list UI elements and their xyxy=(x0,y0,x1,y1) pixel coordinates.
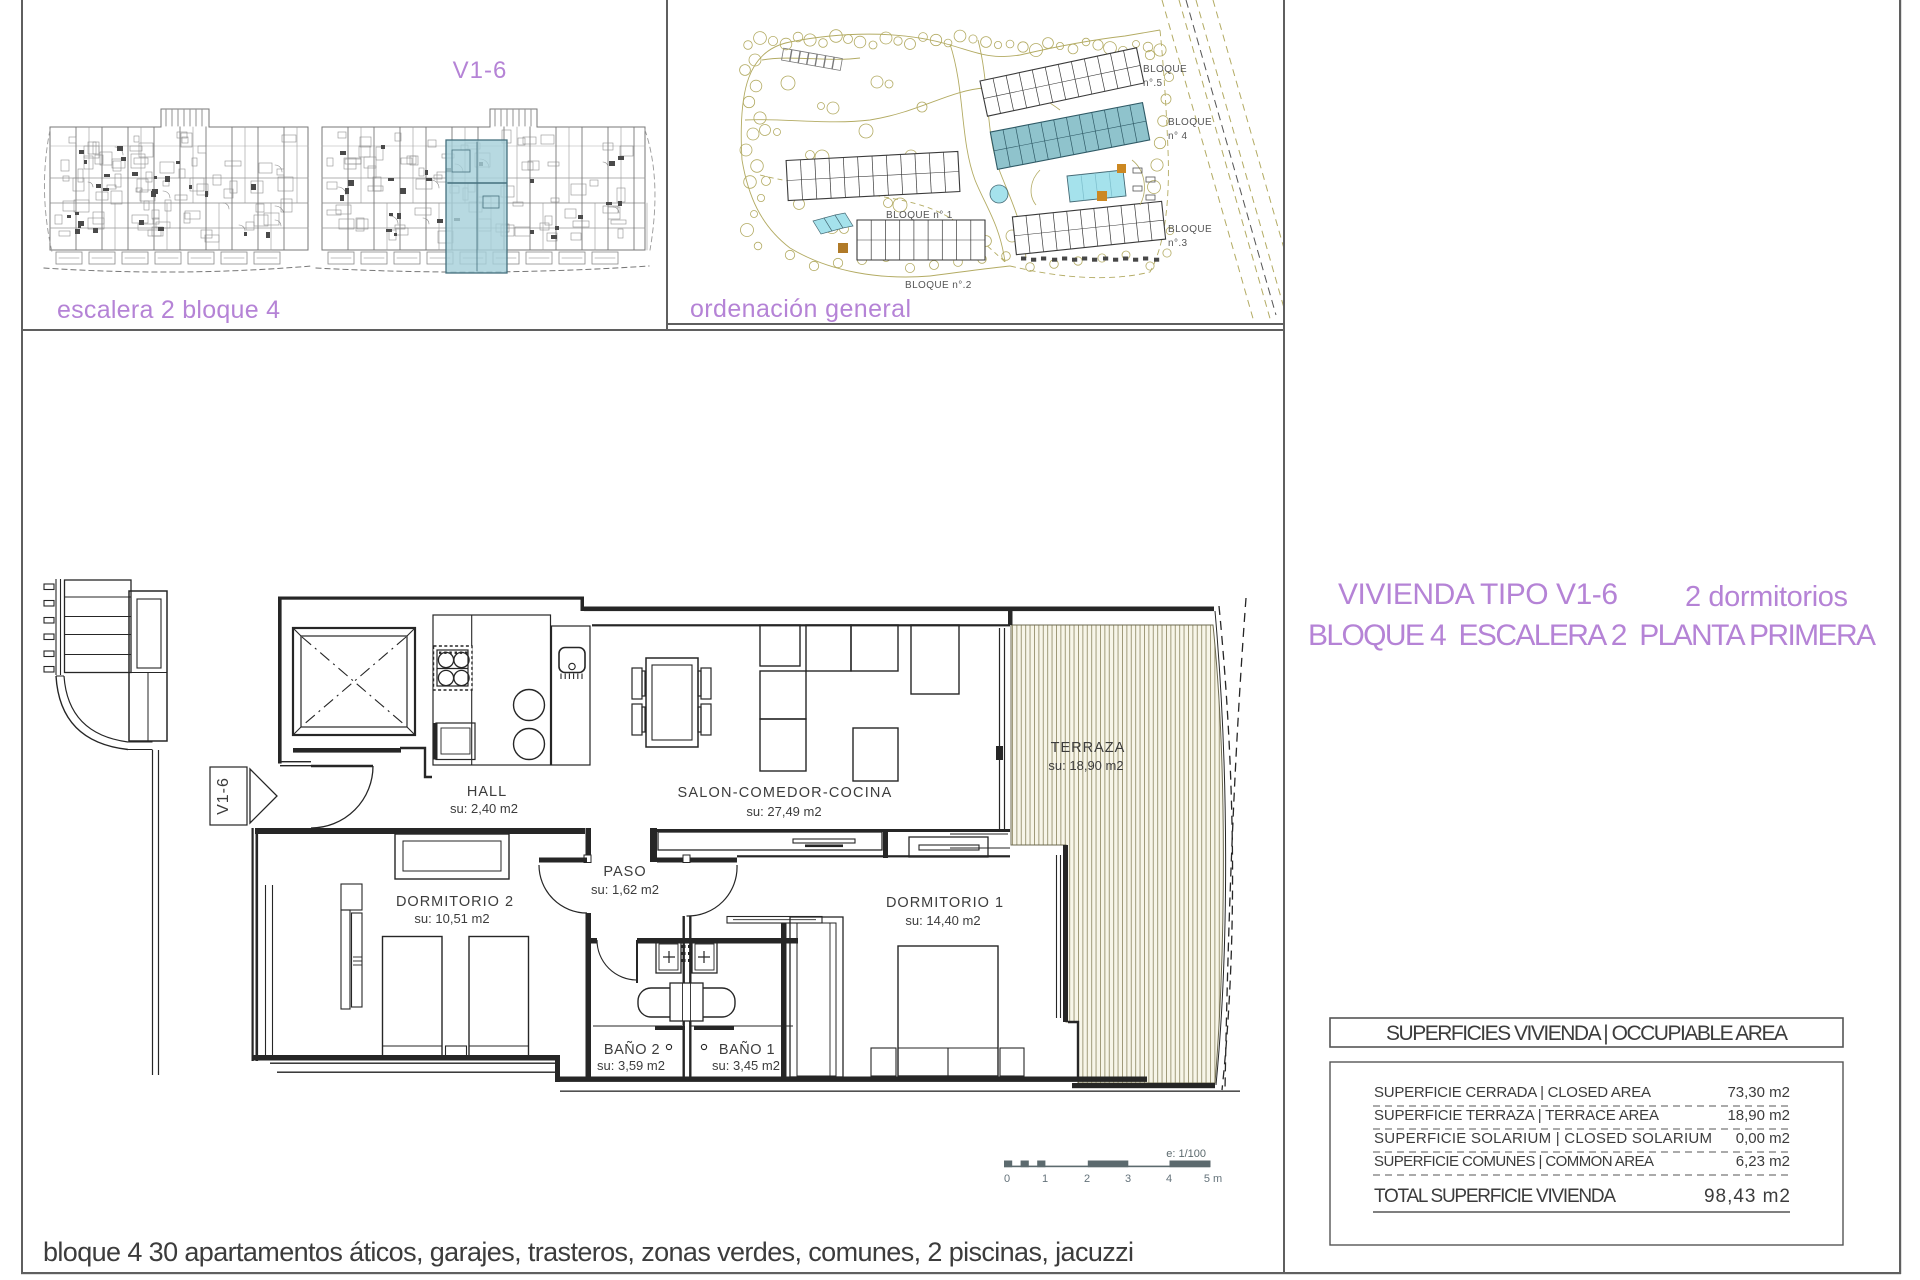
svg-text:SUPERFICIE SOLARIUM | CLOSED: SUPERFICIE SOLARIUM | CLOSED SOLARIUM xyxy=(1374,1130,1712,1147)
svg-text:n°.3: n°.3 xyxy=(1168,238,1188,249)
svg-text:SUPERFICIE CERRADA | CLOSED: SUPERFICIE CERRADA | CLOSED AREA xyxy=(1374,1084,1651,1101)
svg-text:DORMITORIO 2: DORMITORIO 2 xyxy=(396,894,514,910)
svg-text:TOTAL SUPERFICIE VIVIENDA: TOTAL SUPERFICIE VIVIENDA xyxy=(1374,1186,1616,1207)
svg-text:BLOQUE 4 ESCALERA 2 PLANTA P: BLOQUE 4 ESCALERA 2 PLANTA PRIMERA xyxy=(1308,619,1876,652)
svg-text:n°.5: n°.5 xyxy=(1143,78,1163,89)
svg-text:0,00 m2: 0,00 m2 xyxy=(1736,1130,1790,1147)
svg-text:BLOQUE: BLOQUE xyxy=(1168,117,1212,128)
svg-text:6,23 m2: 6,23 m2 xyxy=(1736,1153,1790,1170)
svg-text:su: 3,59 m2: su: 3,59 m2 xyxy=(597,1058,665,1073)
svg-text:98,43 m2: 98,43 m2 xyxy=(1704,1186,1790,1207)
svg-text:SUPERFICIES VIVIENDA | OCCUPIA: SUPERFICIES VIVIENDA | OCCUPIABLE AREA xyxy=(1386,1022,1788,1045)
svg-text:su: 27,49 m2: su: 27,49 m2 xyxy=(746,804,821,819)
svg-text:su: 1,62 m2: su: 1,62 m2 xyxy=(591,882,659,897)
svg-text:BLOQUE: BLOQUE xyxy=(1143,64,1187,75)
svg-text:3: 3 xyxy=(1125,1173,1131,1185)
svg-text:SUPERFICIE COMUNES | COMMON: SUPERFICIE COMUNES | COMMON AREA xyxy=(1374,1153,1654,1170)
svg-text:BLOQUE: BLOQUE xyxy=(1168,224,1212,235)
svg-text:e: 1/100: e: 1/100 xyxy=(1166,1148,1206,1160)
svg-text:2 dormitorios: 2 dormitorios xyxy=(1685,581,1848,613)
svg-text:su: 10,51 m2: su: 10,51 m2 xyxy=(414,911,489,926)
svg-text:18,90 m2: 18,90 m2 xyxy=(1727,1107,1790,1124)
svg-text:bloque 4 30 apartamentos ático: bloque 4 30 apartamentos áticos, garajes… xyxy=(43,1237,1134,1267)
svg-text:HALL: HALL xyxy=(467,784,507,800)
svg-text:0: 0 xyxy=(1004,1173,1010,1185)
svg-text:1: 1 xyxy=(1042,1173,1048,1185)
svg-text:su: 18,90 m2: su: 18,90 m2 xyxy=(1048,758,1123,773)
svg-text:su: 3,45 m2: su: 3,45 m2 xyxy=(712,1058,780,1073)
svg-text:su: 2,40 m2: su: 2,40 m2 xyxy=(450,801,518,816)
svg-text:BAÑO 2: BAÑO 2 xyxy=(604,1041,660,1058)
svg-text:DORMITORIO 1: DORMITORIO 1 xyxy=(886,895,1004,911)
svg-text:escalera 2 bloque 4: escalera 2 bloque 4 xyxy=(57,296,280,324)
svg-text:73,30 m2: 73,30 m2 xyxy=(1727,1084,1790,1101)
svg-text:5 m: 5 m xyxy=(1204,1173,1222,1185)
svg-text:SUPERFICIE TERRAZA | TERRAC: SUPERFICIE TERRAZA | TERRACE AREA xyxy=(1374,1107,1659,1124)
svg-text:VIVIENDA TIPO V1-6: VIVIENDA TIPO V1-6 xyxy=(1338,578,1618,611)
svg-text:BLOQUE n° 1: BLOQUE n° 1 xyxy=(886,210,953,221)
svg-text:BLOQUE n°.2: BLOQUE n°.2 xyxy=(905,280,972,291)
svg-text:n° 4: n° 4 xyxy=(1168,131,1188,142)
svg-text:su: 14,40 m2: su: 14,40 m2 xyxy=(905,913,980,928)
svg-text:V1-6: V1-6 xyxy=(453,57,508,84)
svg-text:4: 4 xyxy=(1166,1173,1172,1185)
svg-text:2: 2 xyxy=(1084,1173,1090,1185)
svg-text:BAÑO 1: BAÑO 1 xyxy=(719,1041,775,1058)
svg-text:SALON-COMEDOR-COCINA: SALON-COMEDOR-COCINA xyxy=(678,785,893,801)
svg-text:ordenación general: ordenación general xyxy=(690,295,911,323)
svg-text:V1-6: V1-6 xyxy=(215,777,232,815)
svg-text:PASO: PASO xyxy=(603,864,646,880)
svg-text:TERRAZA: TERRAZA xyxy=(1051,740,1126,756)
